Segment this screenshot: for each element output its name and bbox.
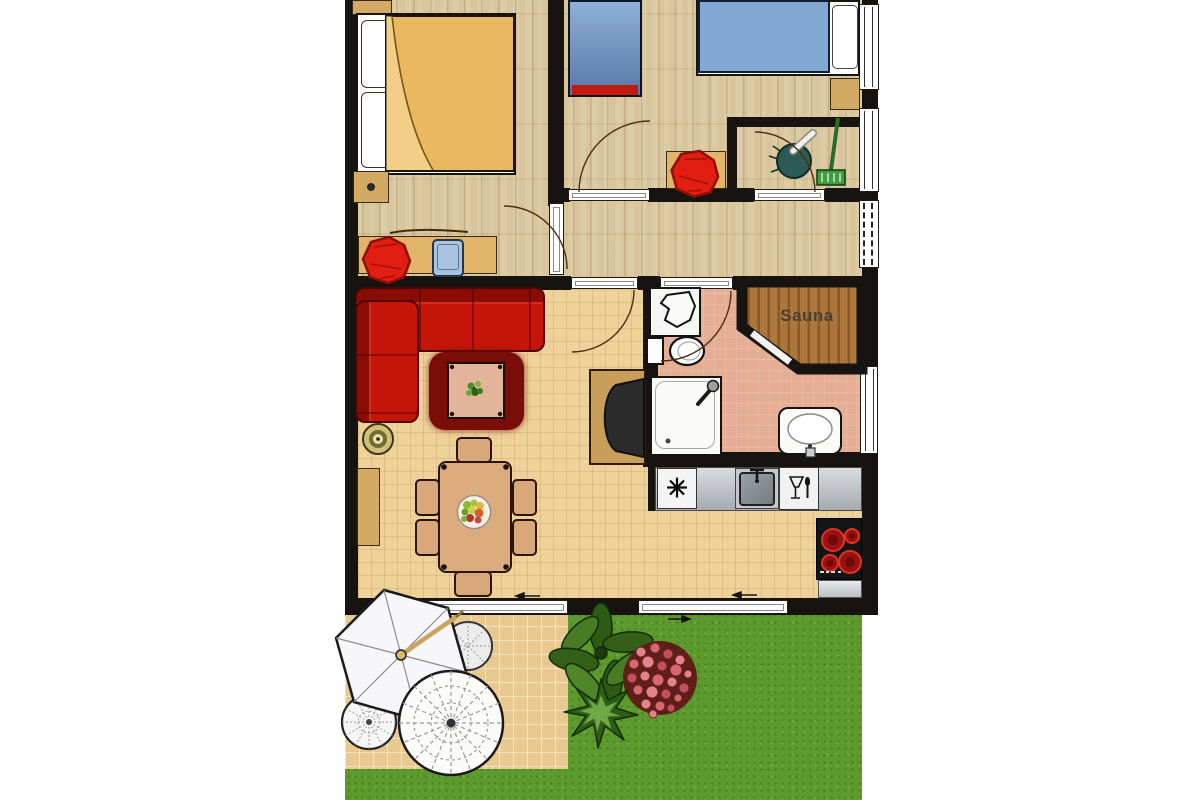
desk-bedroom1 [358,236,497,274]
dining-chair-right-1 [512,479,537,516]
wall-bedroom-divider [548,0,564,206]
dishwasher [779,467,819,510]
stove-cooktop [816,518,862,580]
nightstand-bedroom2 [830,78,860,110]
dining-chair-left-2 [415,519,440,556]
door-bedroom-2 [568,189,650,201]
sliding-door-right [638,600,788,614]
duvet-blue [698,0,830,73]
coffee-table [447,362,505,419]
pillow [832,5,858,69]
bathroom-sink [778,407,842,455]
window-bathroom [860,366,878,454]
dining-chair-bottom [454,571,492,597]
laundry-unit [649,287,701,337]
tv-cabinet [589,369,646,465]
wall-bedroom2-south-b [648,188,754,202]
dining-chair-top [456,437,492,463]
nightstand-knob [367,183,375,191]
stove-cabinet [818,580,862,598]
sofa-vertical-section [355,300,419,423]
door-bedroom-1 [549,203,564,275]
sliding-door-left [420,600,568,614]
floor-plan-canvas: ✳ [0,0,1200,800]
wardrobe-blue [568,0,642,97]
duvet-yellow [385,15,515,172]
desk-bedroom2 [666,151,726,189]
freezer-icon: ✳ [657,468,697,509]
dining-chair-right-2 [512,519,537,556]
dining-table [438,461,512,573]
window-bedroom2 [859,4,879,90]
chair-blue-seat [437,244,459,270]
vent-hallway [859,200,879,268]
wall-closet-north [727,117,862,127]
wall-closet-west [727,117,737,195]
door-closet [754,189,825,201]
shower-tray [655,381,715,449]
door-living-room [571,277,638,289]
sideboard-left [357,468,380,546]
garden-patio-tiles [345,612,568,769]
wall-sauna-north [733,276,862,290]
wall-bedroom2-south-a [548,188,570,202]
wardrobe-blue-base [572,85,638,95]
sauna-label: Sauna [757,305,857,327]
sink-basin [739,472,775,506]
dining-chair-left-1 [415,479,440,516]
wall-right [862,0,878,615]
freezer-symbol: ✳ [666,473,688,504]
wall-bedroom2-south-c [825,188,862,202]
window-closet [859,108,879,192]
